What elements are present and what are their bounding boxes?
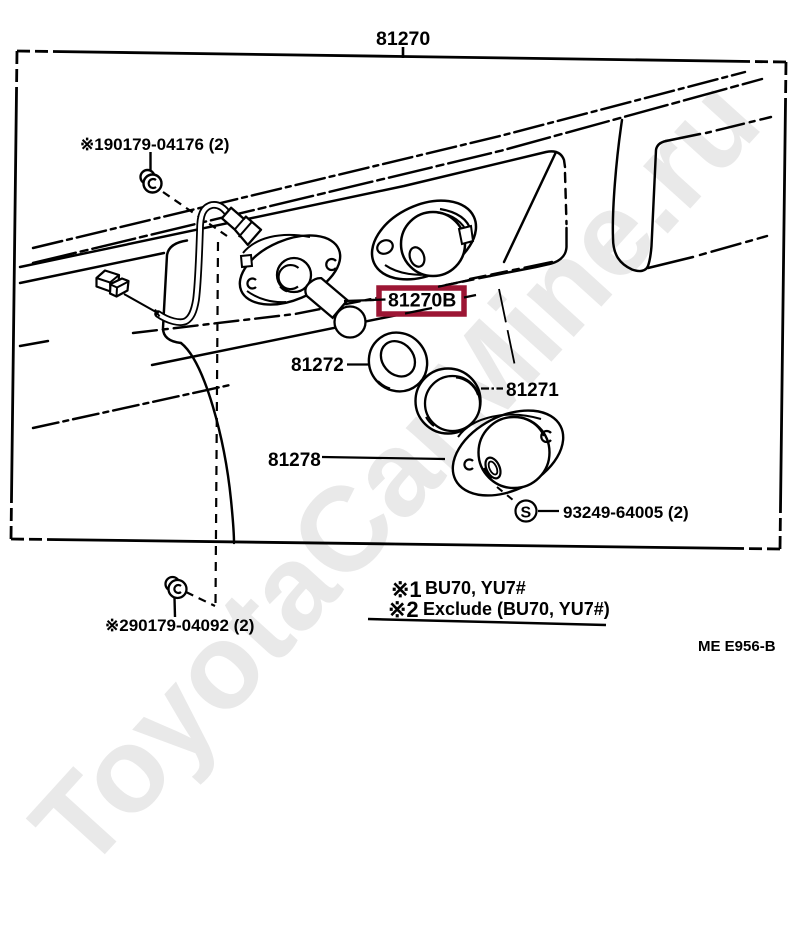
svg-text:※290179-04092 (2): ※290179-04092 (2) (105, 616, 254, 635)
svg-text:81271: 81271 (506, 380, 559, 401)
svg-text:S: S (521, 505, 532, 522)
svg-text:※190179-04176 (2): ※190179-04176 (2) (80, 135, 229, 154)
svg-text:81270B: 81270B (388, 290, 456, 312)
svg-text:93249-64005 (2): 93249-64005 (2) (563, 503, 689, 522)
svg-text:81270: 81270 (376, 28, 430, 50)
svg-text:※2: ※2 (388, 597, 419, 622)
svg-text:Exclude (BU70, YU7#): Exclude (BU70, YU7#) (423, 599, 610, 619)
svg-text:81272: 81272 (291, 355, 344, 376)
svg-text:ME E956-B: ME E956-B (698, 638, 776, 655)
svg-text:BU70, YU7#: BU70, YU7# (425, 578, 526, 598)
svg-text:81278: 81278 (268, 450, 321, 471)
